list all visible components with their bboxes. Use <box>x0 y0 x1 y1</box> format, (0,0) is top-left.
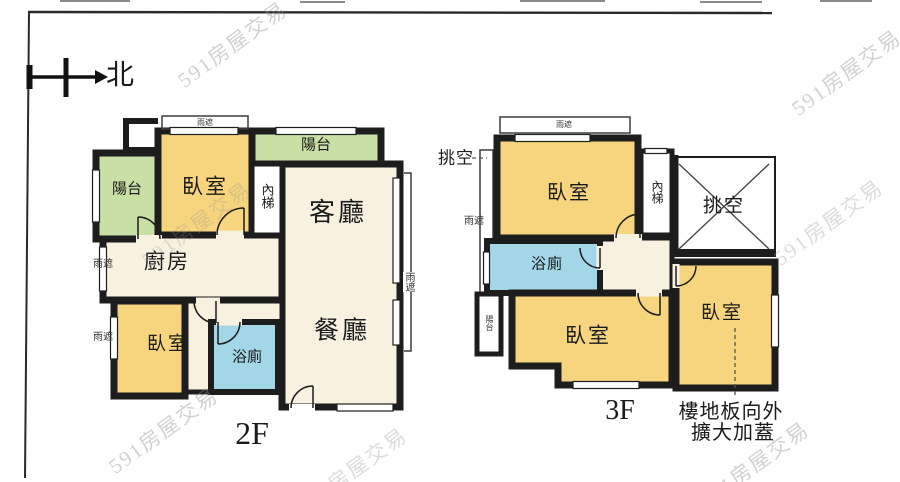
f3-stairs-label: 內梯 <box>651 180 663 204</box>
f3-rain-top-label: 雨遮 <box>556 121 572 129</box>
f2-rain-left-lower-label: 雨遮 <box>93 333 113 343</box>
f2-dining-label: 餐廳 <box>314 319 370 344</box>
f2-bedroom-bottom-label: 臥室 <box>147 335 189 354</box>
f2-caption: 2F <box>235 417 269 449</box>
f2-balcony-top-label: 陽台 <box>301 139 331 154</box>
f3-bedroom-top-label: 臥室 <box>547 183 591 203</box>
f2-rain-right-label: 雨遮 <box>403 272 413 292</box>
floor2-plan <box>93 116 412 412</box>
f3-bedroom-right-shape <box>676 262 775 388</box>
floor3-plan <box>472 117 779 397</box>
f2-stairs-label: 內梯 <box>261 183 274 209</box>
f2-rain-top-label: 雨遮 <box>197 119 213 127</box>
f3-rain-left-label: 雨遮 <box>464 217 484 227</box>
f3-void-room-label: 挑空 <box>703 197 745 216</box>
f3-bedroom-center-label: 臥室 <box>565 326 611 347</box>
f3-void-left-label: 挑空 <box>438 150 474 167</box>
f2-living-label: 客廳 <box>309 200 367 226</box>
f2-bathroom-label: 浴廁 <box>232 351 262 366</box>
north-arrow-icon <box>29 58 108 97</box>
f3-bedroom-right-label: 臥室 <box>701 304 743 323</box>
f3-extension-note-line1: 樓地板向外 <box>679 402 784 422</box>
f3-hall-shape <box>600 238 672 295</box>
f2-balcony-left-label: 陽台 <box>112 183 142 198</box>
f3-caption: 3F <box>605 397 635 425</box>
north-label: 北 <box>106 62 134 90</box>
f2-right-bracket <box>404 173 411 351</box>
f2-rain-left-upper-label: 雨遮 <box>93 260 113 270</box>
floor-plan-page: 北 陽台 臥室 內梯 陽台 客廳 廚房 臥室 浴廁 餐廳 2F 雨遮 雨遮 雨遮… <box>0 0 900 482</box>
f2-notch-wall <box>126 121 158 150</box>
f3-bathroom-label: 浴廁 <box>531 258 563 273</box>
f3-balcony-narrow-label: 陽台 <box>485 315 493 331</box>
